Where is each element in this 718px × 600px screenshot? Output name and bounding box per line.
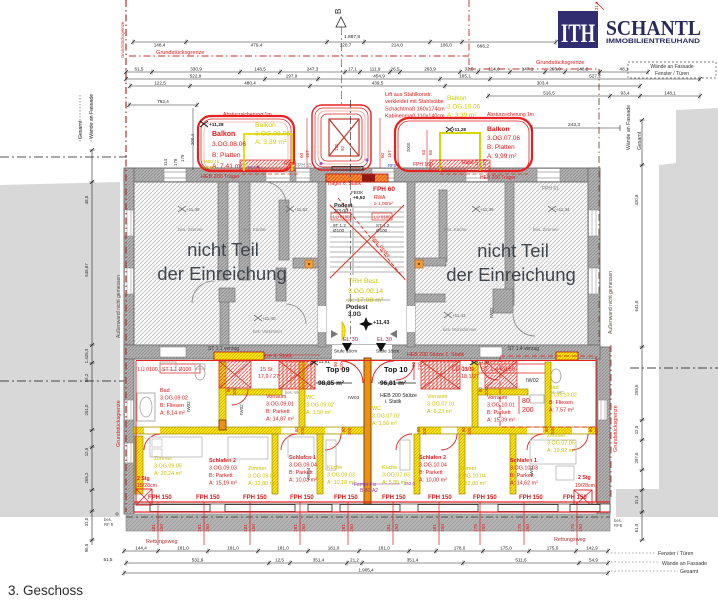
- svg-text:EL 30: EL 30: [377, 337, 392, 343]
- svg-text:60: 60: [299, 152, 304, 158]
- svg-text:150: 150: [394, 524, 400, 532]
- svg-text:A: 10,00 m²: A: 10,00 m²: [419, 478, 447, 484]
- svg-text:175,0: 175,0: [500, 546, 512, 551]
- svg-text:1.887,8: 1.887,8: [344, 34, 360, 40]
- svg-text:516,5: 516,5: [543, 91, 555, 96]
- svg-text:19/28cm: 19/28cm: [575, 483, 595, 489]
- svg-text:181,0: 181,0: [378, 546, 390, 551]
- svg-text:150: 150: [578, 524, 584, 532]
- svg-text:Balkon: Balkon: [487, 126, 510, 133]
- svg-text:FPH 55: FPH 55: [295, 163, 312, 169]
- svg-text:Grundstücksgrenze: Grundstücksgrenze: [156, 50, 205, 56]
- svg-text:A: 9,99 m²: A: 9,99 m²: [487, 153, 516, 160]
- svg-text:+11,52: +11,52: [294, 207, 308, 212]
- svg-text:220: 220: [339, 362, 344, 370]
- svg-text:A: 1,50 m²: A: 1,50 m²: [372, 421, 397, 427]
- svg-text:A: 10,03 m²: A: 10,03 m²: [289, 478, 317, 484]
- svg-text:48,1: 48,1: [620, 67, 629, 72]
- svg-text:150: 150: [205, 524, 211, 532]
- svg-text:Wände an Fassade: Wände an Fassade: [650, 64, 694, 70]
- svg-text:641,8: 641,8: [634, 300, 639, 312]
- svg-text:420,8: 420,8: [634, 194, 639, 206]
- svg-text:175,0: 175,0: [547, 546, 559, 551]
- svg-text:200: 200: [300, 427, 305, 435]
- svg-text:≥ 1,00m²: ≥ 1,00m²: [374, 201, 393, 207]
- svg-text:90: 90: [333, 361, 338, 367]
- svg-text:2 Stg: 2 Stg: [137, 476, 150, 482]
- svg-text:+11,28: +11,28: [452, 127, 466, 132]
- svg-text:200: 200: [347, 427, 352, 435]
- svg-text:3.0G: 3.0G: [348, 312, 361, 318]
- svg-text:80: 80: [478, 387, 483, 392]
- svg-text:RFB: RFB: [614, 523, 623, 528]
- svg-text:3.OG.10.06: 3.OG.10.06: [447, 104, 480, 111]
- svg-text:1.425,9: 1.425,9: [84, 348, 89, 363]
- svg-text:32,5: 32,5: [465, 67, 474, 72]
- svg-text:Vorraum: Vorraum: [427, 394, 448, 400]
- svg-text:263,9: 263,9: [424, 67, 436, 72]
- svg-text:18,1/27: 18,1/27: [461, 374, 479, 380]
- svg-text:80: 80: [341, 427, 346, 432]
- svg-text:98,85 m²: 98,85 m²: [318, 380, 345, 387]
- svg-text:3.OG.09.05: 3.OG.09.05: [154, 464, 182, 470]
- svg-text:96,81 m²: 96,81 m²: [380, 380, 407, 387]
- svg-text:Schlafen 1: Schlafen 1: [289, 455, 316, 461]
- svg-text:175: 175: [517, 524, 523, 532]
- svg-text:Fenster / Türen: Fenster / Türen: [655, 71, 689, 77]
- svg-text:ITH: ITH: [561, 19, 595, 48]
- svg-text:3.OG.10.04: 3.OG.10.04: [458, 474, 486, 480]
- svg-text:Ø100: Ø100: [376, 228, 388, 233]
- svg-text:330,9: 330,9: [190, 67, 202, 72]
- svg-text:+11,34: +11,34: [556, 207, 570, 212]
- svg-text:144,4: 144,4: [135, 546, 147, 551]
- svg-text:A: 6,23 m²: A: 6,23 m²: [427, 409, 452, 415]
- svg-text:Vorraum: Vorraum: [266, 394, 287, 400]
- svg-text:Grundstücksgrenze: Grundstücksgrenze: [613, 405, 619, 452]
- svg-text:B: Platten: B: Platten: [487, 144, 515, 151]
- svg-text:Wände an Fassade: Wände an Fassade: [89, 94, 95, 139]
- svg-text:A: 15,39 m²: A: 15,39 m²: [487, 418, 515, 424]
- svg-text:12,5: 12,5: [634, 425, 639, 434]
- svg-text:A: 3,39 m²: A: 3,39 m²: [255, 139, 287, 146]
- svg-text:181: 181: [151, 524, 157, 532]
- svg-text:3.OG.08.06: 3.OG.08.06: [212, 141, 246, 148]
- svg-text:Balkon: Balkon: [212, 131, 235, 138]
- svg-text:A: 8,14 m²: A: 8,14 m²: [160, 411, 185, 417]
- svg-text:762,4: 762,4: [157, 99, 169, 104]
- svg-text:120: 120: [334, 143, 339, 151]
- svg-text:Rettungsweg: Rettungsweg: [554, 537, 585, 543]
- svg-text:WC: WC: [306, 395, 315, 401]
- svg-text:3.OG.08.06: 3.OG.08.06: [255, 130, 290, 137]
- svg-text:Schachtmaß 160x174cm: Schachtmaß 160x174cm: [385, 106, 445, 112]
- svg-text:3.OG.07.02: 3.OG.07.02: [372, 414, 400, 420]
- svg-text:ST 1.4 verzug: ST 1.4 verzug: [508, 346, 539, 352]
- svg-text:351,4: 351,4: [407, 558, 419, 563]
- svg-text:3.OG.07.03: 3.OG.07.03: [382, 473, 410, 479]
- svg-text:IW02: IW02: [489, 307, 494, 318]
- svg-text:verkleidet mit Stahlstäbe: verkleidet mit Stahlstäbe: [385, 99, 444, 105]
- svg-text:120,7: 120,7: [340, 43, 352, 48]
- svg-text:Bad: Bad: [549, 385, 559, 391]
- svg-text:3.OG.07.01: 3.OG.07.01: [427, 402, 455, 408]
- svg-text:IW03: IW03: [348, 395, 360, 401]
- svg-text:Küche: Küche: [382, 465, 397, 471]
- svg-text:3.OG.09.04: 3.OG.09.04: [248, 474, 276, 480]
- svg-text:200: 200: [550, 427, 555, 435]
- svg-text:15 St: 15 St: [260, 367, 273, 373]
- svg-text:B 80-A2: B 80-A2: [360, 488, 378, 494]
- svg-text:167: 167: [387, 150, 392, 158]
- svg-text:3.OG.07.05: 3.OG.07.05: [547, 441, 575, 447]
- svg-text:B: Parkett: B: Parkett: [487, 410, 511, 416]
- svg-text:148,1: 148,1: [664, 91, 676, 96]
- svg-text:150: 150: [481, 524, 487, 532]
- svg-text:142,9: 142,9: [586, 546, 598, 551]
- svg-text:i. Statik: i. Statik: [385, 399, 402, 405]
- svg-text:A: 14,87 m²: A: 14,87 m²: [266, 417, 294, 423]
- svg-text:+9,52: +9,52: [353, 195, 365, 201]
- svg-text:17,9 / 27: 17,9 / 27: [258, 374, 279, 380]
- svg-text:A: 7,57 m²: A: 7,57 m²: [549, 408, 574, 414]
- svg-text:53: 53: [421, 149, 426, 155]
- svg-text:+11,40: +11,40: [262, 316, 276, 321]
- svg-text:200: 200: [484, 387, 489, 395]
- svg-text:A: 12,80 m²: A: 12,80 m²: [458, 481, 486, 487]
- svg-text:LÜ 0100: LÜ 0100: [333, 215, 350, 220]
- svg-text:645,87: 645,87: [84, 263, 89, 277]
- svg-text:251,0: 251,0: [84, 404, 89, 416]
- svg-text:RFB a: RFB a: [204, 165, 217, 170]
- svg-text:A: 19,92 m²: A: 19,92 m²: [547, 448, 575, 454]
- svg-text:B: Parkett: B: Parkett: [266, 409, 290, 415]
- svg-text:179: 179: [180, 154, 185, 162]
- svg-text:185,1: 185,1: [459, 74, 471, 79]
- svg-text:IW02: IW02: [186, 401, 191, 412]
- svg-text:181,0: 181,0: [227, 546, 239, 551]
- svg-text:150: 150: [301, 524, 307, 532]
- svg-text:15/28cm: 15/28cm: [137, 483, 157, 489]
- svg-text:12,5: 12,5: [84, 447, 89, 456]
- svg-text:nicht Teil: nicht Teil: [477, 240, 549, 261]
- svg-text:21,2: 21,2: [350, 558, 359, 563]
- svg-text:26,5: 26,5: [391, 67, 400, 72]
- svg-text:+11,43: +11,43: [373, 320, 389, 326]
- svg-text:FPH 150: FPH 150: [473, 495, 497, 501]
- svg-text:bes. Vorzimmer: bes. Vorzimmer: [253, 329, 283, 334]
- svg-text:FPH 150: FPH 150: [428, 495, 452, 501]
- svg-text:Vorraum: Vorraum: [487, 395, 508, 401]
- svg-text:A: 15,19 m²: A: 15,19 m²: [209, 481, 237, 487]
- svg-text:HEB 200 Träger: HEB 200 Träger: [480, 175, 516, 181]
- svg-text:80: 80: [294, 427, 299, 432]
- svg-text:3.OG.09.02: 3.OG.09.02: [306, 403, 334, 409]
- svg-text:SCHANTL: SCHANTL: [606, 16, 701, 40]
- svg-text:Träger 6. Statik: Träger 6. Statik: [327, 181, 361, 187]
- svg-text:220: 220: [417, 362, 422, 370]
- svg-text:3.OG.10.04: 3.OG.10.04: [419, 463, 447, 469]
- svg-text:147,1: 147,1: [522, 67, 534, 72]
- svg-text:3.OG.09.03: 3.OG.09.03: [327, 473, 355, 479]
- svg-text:Ø100: Ø100: [333, 228, 345, 233]
- svg-text:bes. Küche: bes. Küche: [444, 227, 467, 232]
- svg-text:150: 150: [159, 524, 165, 532]
- svg-text:666,2: 666,2: [477, 44, 489, 50]
- svg-text:480,4: 480,4: [244, 81, 256, 86]
- svg-text:Gesamt: Gesamt: [680, 569, 699, 575]
- svg-text:B: Platten: B: Platten: [212, 152, 241, 159]
- svg-text:80: 80: [522, 398, 530, 405]
- svg-text:61,9: 61,9: [634, 523, 639, 532]
- svg-text:der Einreichung: der Einreichung: [157, 263, 287, 284]
- svg-text:247,3: 247,3: [307, 67, 319, 72]
- svg-text:150: 150: [349, 524, 355, 532]
- svg-text:214,0: 214,0: [391, 43, 403, 48]
- svg-text:Schlafen 1: Schlafen 1: [510, 458, 537, 464]
- svg-text:nicht Teil: nicht Teil: [187, 239, 259, 260]
- svg-text:FPH 150: FPH 150: [519, 495, 543, 501]
- svg-text:17,1: 17,1: [348, 67, 357, 72]
- svg-text:FPH 160: FPH 160: [413, 162, 433, 168]
- svg-text:B: B: [334, 9, 343, 14]
- svg-text:B: Fliesen: B: Fliesen: [549, 400, 573, 406]
- svg-text:148,5: 148,5: [254, 67, 266, 72]
- svg-text:Rettungsweg: Rettungsweg: [146, 539, 177, 545]
- svg-text:B: Parkett: B: Parkett: [419, 470, 443, 476]
- svg-text:352,0: 352,0: [404, 481, 416, 486]
- svg-text:RF 8: RF 8: [104, 522, 114, 527]
- svg-text:FPH 61: FPH 61: [542, 186, 559, 192]
- svg-text:148,2: 148,2: [577, 67, 589, 72]
- svg-text:FBOK: FBOK: [351, 190, 363, 195]
- svg-text:Außenwand nicht gemessen: Außenwand nicht gemessen: [608, 271, 614, 334]
- svg-text:200: 200: [422, 427, 427, 435]
- svg-text:TRH Best.: TRH Best.: [348, 278, 379, 285]
- svg-text:Podest: Podest: [346, 304, 369, 311]
- svg-text:HEB 200 Stütze 1. Statik: HEB 200 Stütze 1. Statik: [407, 352, 464, 358]
- svg-text:175: 175: [473, 524, 479, 532]
- svg-text:EL 30: EL 30: [343, 337, 358, 343]
- svg-text:Bad: Bad: [160, 388, 170, 394]
- svg-text:148,4: 148,4: [154, 43, 166, 48]
- svg-text:Absturzsicherung 1m: Absturzsicherung 1m: [487, 112, 534, 118]
- svg-text:150: 150: [440, 524, 446, 532]
- svg-text:351,4: 351,4: [313, 558, 325, 563]
- svg-text:HEB 200 Träger: HEB 200 Träger: [201, 174, 240, 180]
- svg-text:93,4: 93,4: [621, 91, 630, 96]
- svg-text:A: 7,41 m²: A: 7,41 m²: [212, 163, 243, 170]
- svg-text:527,2: 527,2: [589, 74, 601, 79]
- svg-text:Fenster / Türen: Fenster / Türen: [658, 551, 693, 557]
- svg-text:181: 181: [386, 524, 392, 532]
- svg-text:181: 181: [243, 524, 249, 532]
- svg-text:114,0: 114,0: [488, 67, 500, 72]
- svg-text:532,9: 532,9: [192, 558, 204, 563]
- svg-text:3.OG.10.01: 3.OG.10.01: [487, 403, 515, 409]
- svg-text:Schlafen 2: Schlafen 2: [419, 455, 446, 461]
- svg-text:FPH 150: FPH 150: [196, 495, 220, 501]
- svg-text:287,6: 287,6: [634, 452, 639, 464]
- svg-text:181: 181: [432, 524, 438, 532]
- svg-text:122,5: 122,5: [154, 81, 166, 86]
- svg-text:111,9: 111,9: [370, 67, 381, 72]
- svg-text:IW02: IW02: [239, 404, 244, 415]
- svg-text:200: 200: [232, 387, 237, 395]
- svg-text:B: Fliesen: B: Fliesen: [160, 403, 184, 409]
- svg-text:80: 80: [544, 427, 549, 432]
- svg-text:181: 181: [341, 524, 347, 532]
- svg-text:150: 150: [525, 524, 531, 532]
- svg-text:+11,39: +11,39: [186, 207, 200, 212]
- svg-text:MBU 1b: MBU 1b: [204, 159, 220, 164]
- svg-text:Wände an Fassade: Wände an Fassade: [626, 105, 632, 150]
- svg-text:FPH 150: FPH 150: [563, 495, 587, 501]
- svg-text:479,4: 479,4: [251, 43, 263, 48]
- svg-text:RWA: RWA: [374, 195, 386, 201]
- svg-text:A: 1,50 m²: A: 1,50 m²: [306, 410, 331, 416]
- svg-text:106,0: 106,0: [440, 43, 452, 48]
- svg-text:176: 176: [482, 158, 487, 166]
- svg-text:RFS: RFS: [388, 163, 397, 168]
- svg-text:31,0: 31,0: [84, 517, 89, 526]
- svg-text:A: 12,80 m²: A: 12,80 m²: [248, 481, 276, 487]
- svg-text:197,9: 197,9: [286, 74, 298, 79]
- svg-text:+11,39: +11,39: [480, 207, 494, 212]
- svg-text:A: 10,18 m²: A: 10,18 m²: [327, 480, 355, 486]
- svg-text:65: 65: [428, 149, 433, 155]
- svg-text:A: 17,08 m²: A: 17,08 m²: [348, 297, 384, 304]
- svg-text:439,5: 439,5: [372, 81, 384, 86]
- svg-text:A: 20,24 m²: A: 20,24 m²: [154, 471, 182, 477]
- svg-text:bes. Küche: bes. Küche: [243, 227, 266, 232]
- svg-text:+11,61: +11,61: [316, 359, 330, 364]
- svg-text:3.OG.00.14: 3.OG.00.14: [348, 288, 383, 295]
- svg-text:114: 114: [163, 158, 168, 166]
- svg-text:175: 175: [570, 524, 576, 532]
- svg-text:Außenwand nicht gemessen: Außenwand nicht gemessen: [116, 275, 122, 338]
- svg-text:LÜ 0100,: LÜ 0100,: [138, 366, 159, 373]
- svg-text:3.OG.09.02: 3.OG.09.02: [160, 396, 188, 402]
- svg-text:150: 150: [251, 524, 257, 532]
- svg-text:WC: WC: [372, 406, 381, 412]
- svg-text:3.OG.09.03: 3.OG.09.03: [209, 466, 237, 472]
- svg-text:178,0: 178,0: [454, 546, 466, 551]
- svg-text:181: 181: [197, 524, 203, 532]
- svg-text:265,2: 265,2: [84, 472, 89, 484]
- svg-text:AW04: AW04: [306, 467, 311, 480]
- svg-text:181,0: 181,0: [328, 546, 340, 551]
- svg-text:92: 92: [340, 146, 345, 151]
- svg-text:ST 1.1 verzug: ST 1.1 verzug: [208, 346, 239, 352]
- svg-text:2 Stg: 2 Stg: [578, 475, 591, 481]
- svg-text:A: 14,62 m²: A: 14,62 m²: [510, 481, 538, 487]
- svg-text:454,9: 454,9: [373, 74, 385, 79]
- svg-text:Zimmer: Zimmer: [458, 466, 476, 472]
- svg-text:3.OG.07.06: 3.OG.07.06: [487, 135, 520, 142]
- svg-text:bes. Zimmer: bes. Zimmer: [533, 227, 559, 232]
- svg-text:116: 116: [474, 158, 479, 166]
- svg-text:80: 80: [416, 427, 421, 432]
- svg-text:Gesamt: Gesamt: [78, 120, 84, 139]
- svg-text:FPH 60: FPH 60: [373, 186, 395, 193]
- svg-text:522,9: 522,9: [190, 74, 202, 79]
- svg-text:12,5: 12,5: [275, 558, 284, 563]
- svg-text:61,5: 61,5: [135, 67, 144, 72]
- svg-text:IMMOBILIENTREUHAND: IMMOBILIENTREUHAND: [606, 38, 701, 45]
- svg-text:303,4: 303,4: [537, 81, 549, 86]
- svg-text:259,6: 259,6: [634, 384, 639, 396]
- svg-text:LÜ 0100: LÜ 0100: [374, 215, 391, 220]
- svg-text:Grundstücksgrenze: Grundstücksgrenze: [116, 400, 122, 447]
- svg-text:bes. Zimmer: bes. Zimmer: [178, 227, 204, 232]
- svg-text:IW02: IW02: [526, 378, 539, 384]
- svg-text:3.OG.09.01: 3.OG.09.01: [266, 402, 294, 408]
- svg-text:181,0: 181,0: [177, 546, 189, 551]
- svg-text:200: 200: [522, 407, 534, 414]
- svg-text:48,5: 48,5: [84, 195, 89, 204]
- svg-text:200: 200: [467, 427, 472, 435]
- svg-text:Rigol: Rigol: [462, 160, 473, 166]
- svg-text:54,9: 54,9: [589, 558, 598, 563]
- svg-text:511,6: 511,6: [515, 558, 527, 563]
- svg-text:Balkon: Balkon: [447, 95, 467, 102]
- svg-text:266,0: 266,0: [549, 67, 561, 72]
- svg-text:95,5: 95,5: [84, 543, 89, 552]
- svg-text:Balkon: Balkon: [255, 122, 276, 129]
- svg-text:181: 181: [293, 524, 299, 532]
- svg-text:der Einreichung: der Einreichung: [446, 264, 576, 285]
- svg-text:167: 167: [305, 150, 310, 158]
- svg-text:3.OG.09.04: 3.OG.09.04: [289, 463, 317, 469]
- svg-text:FPH 150: FPH 150: [334, 495, 358, 501]
- svg-text:80: 80: [461, 427, 466, 432]
- svg-text:Wände an Fassade: Wände an Fassade: [662, 561, 707, 567]
- svg-text:56,2: 56,2: [84, 373, 89, 382]
- svg-text:80: 80: [588, 427, 593, 432]
- svg-text:Top 10: Top 10: [384, 365, 408, 374]
- svg-text:181,0: 181,0: [277, 546, 289, 551]
- svg-text:bes. Wohnzimmer: bes. Wohnzimmer: [443, 327, 477, 332]
- svg-text:Grundstücksgrenze: Grundstücksgrenze: [120, 21, 125, 58]
- svg-text:3.OG.10.02: 3.OG.10.02: [549, 393, 577, 399]
- svg-text:3. Geschoss: 3. Geschoss: [8, 583, 83, 598]
- svg-text:2000: 2000: [406, 142, 411, 152]
- svg-text:B: Parkett: B: Parkett: [209, 473, 233, 479]
- svg-text:Absturzsicherung 1m: Absturzsicherung 1m: [223, 112, 272, 118]
- svg-text:Zimmer: Zimmer: [248, 466, 266, 472]
- svg-text:+11,28: +11,28: [209, 122, 224, 128]
- svg-text:FPH 150: FPH 150: [243, 495, 267, 501]
- svg-text:FPH 150: FPH 150: [382, 495, 406, 501]
- svg-text:+11,43: +11,43: [452, 313, 466, 318]
- svg-text:51,5: 51,5: [104, 557, 113, 562]
- svg-text:15 St: 15 St: [462, 367, 475, 373]
- svg-text:178: 178: [173, 158, 178, 166]
- svg-text:1.905,4: 1.905,4: [358, 568, 374, 573]
- svg-text:200,4: 200,4: [190, 133, 195, 145]
- svg-text:31,3: 31,3: [634, 495, 639, 504]
- svg-text:60: 60: [380, 152, 385, 158]
- svg-text:80: 80: [226, 387, 231, 392]
- svg-text:FPH 150: FPH 150: [290, 495, 314, 501]
- svg-text:Grundstücksgrenze: Grundstücksgrenze: [536, 60, 585, 66]
- svg-text:Lift aus Stahlkonstr.: Lift aus Stahlkonstr.: [385, 92, 432, 98]
- svg-text:IW02: IW02: [529, 465, 534, 476]
- svg-text:243,3: 243,3: [568, 122, 580, 128]
